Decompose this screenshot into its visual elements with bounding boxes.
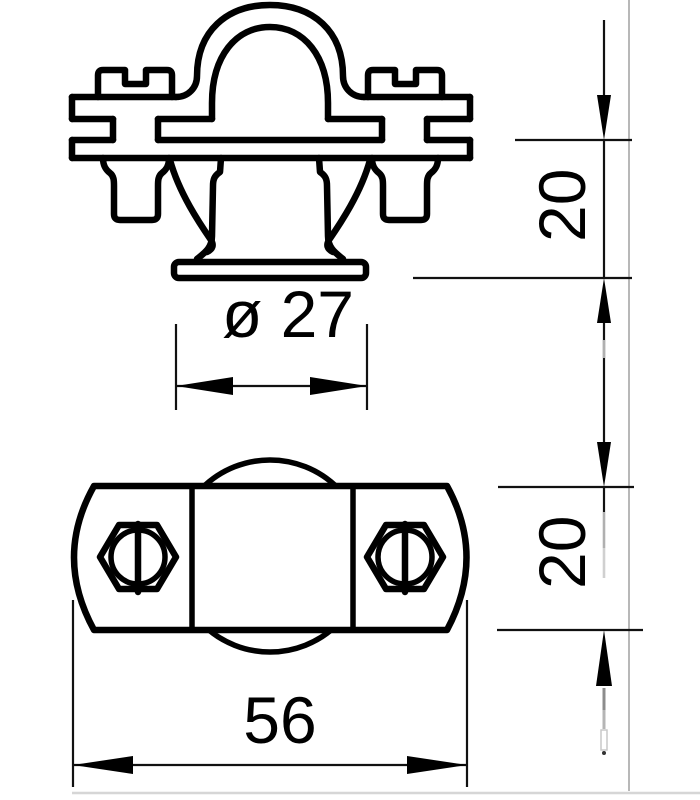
pedestal-left-skirt	[170, 160, 213, 252]
right-nut	[372, 158, 438, 220]
width-arrow-left	[73, 756, 133, 774]
width-arrow-right	[407, 756, 467, 774]
technical-drawing-page: ø 27 20 20	[0, 0, 700, 800]
dim-tail-tip	[601, 730, 607, 750]
dim-tail-dot	[602, 751, 606, 755]
diameter-arrow-left	[176, 377, 233, 395]
drawing-canvas: ø 27 20 20	[0, 0, 700, 800]
pedestal-base	[174, 262, 366, 278]
pedestal-right-skirt	[327, 160, 370, 252]
lower-dim-arrow-down	[597, 442, 611, 487]
strap-outer-curve	[176, 5, 364, 97]
strap-inner-curve	[212, 27, 328, 119]
pedestal-right-wall	[319, 158, 343, 259]
left-bolt-head	[98, 70, 172, 97]
upper-dim-arrow-up	[597, 278, 611, 323]
right-bolt-head	[368, 70, 442, 97]
lower-dim-arrow-up	[596, 630, 612, 686]
clamp-side-view	[72, 5, 470, 278]
clamp-plan-view	[74, 460, 467, 652]
upper-dim-arrow-down	[597, 95, 611, 140]
upper-height-dimension-label: 20	[525, 169, 599, 242]
lower-height-dimension-label: 20	[525, 516, 599, 589]
diameter-arrow-right	[310, 377, 367, 395]
upper-bar-end-edges	[72, 97, 470, 119]
width-dimension-label: 56	[243, 683, 316, 757]
dimension-diameter: ø 27	[176, 277, 367, 410]
diameter-dimension-label: ø 27	[222, 277, 354, 351]
left-nut	[103, 158, 169, 220]
pedestal-left-wall	[197, 158, 221, 259]
